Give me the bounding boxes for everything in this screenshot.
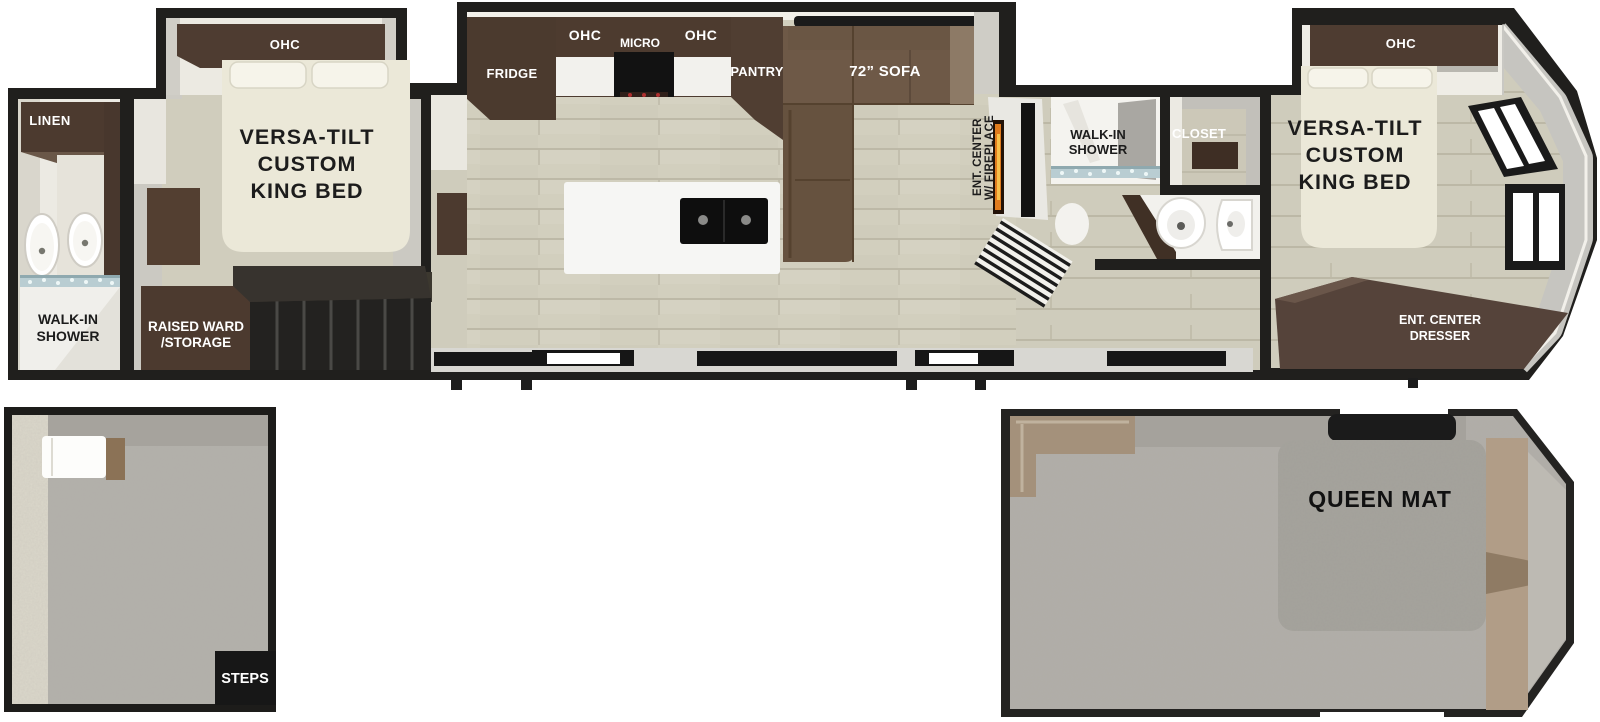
svg-text:CLOSET: CLOSET: [1172, 126, 1226, 141]
svg-text:W/ FIREPLACE: W/ FIREPLACE: [984, 115, 996, 200]
svg-text:VERSA-TILT: VERSA-TILT: [1287, 116, 1422, 140]
svg-text:PANTRY: PANTRY: [730, 64, 783, 79]
svg-text:ENT. CENTER: ENT. CENTER: [1399, 313, 1481, 327]
svg-text:LINEN: LINEN: [29, 113, 71, 128]
svg-text:CUSTOM: CUSTOM: [1306, 143, 1405, 167]
svg-text:KING BED: KING BED: [250, 179, 363, 203]
svg-text:STEPS: STEPS: [221, 671, 269, 687]
svg-text:VERSA-TILT: VERSA-TILT: [239, 125, 374, 149]
svg-text:ENT. CENTER: ENT. CENTER: [972, 118, 984, 196]
svg-text:OHC: OHC: [1386, 36, 1417, 51]
svg-text:SHOWER: SHOWER: [1069, 142, 1128, 157]
svg-text:WALK-IN: WALK-IN: [1070, 127, 1126, 142]
svg-text:OHC: OHC: [569, 27, 602, 43]
svg-text:RAISED WARD: RAISED WARD: [148, 319, 244, 334]
svg-text:/STORAGE: /STORAGE: [161, 335, 231, 350]
svg-text:OHC: OHC: [270, 37, 301, 52]
svg-text:CUSTOM: CUSTOM: [258, 152, 357, 176]
svg-text:KING BED: KING BED: [1298, 170, 1411, 194]
svg-text:OHC: OHC: [685, 27, 718, 43]
svg-text:FRIDGE: FRIDGE: [487, 66, 538, 81]
svg-text:WALK-IN: WALK-IN: [38, 311, 98, 327]
svg-text:72” SOFA: 72” SOFA: [849, 63, 921, 80]
svg-text:MICRO: MICRO: [620, 36, 660, 50]
svg-text:SHOWER: SHOWER: [37, 328, 100, 344]
svg-text:QUEEN MAT: QUEEN MAT: [1308, 486, 1452, 512]
svg-text:DRESSER: DRESSER: [1410, 329, 1470, 343]
